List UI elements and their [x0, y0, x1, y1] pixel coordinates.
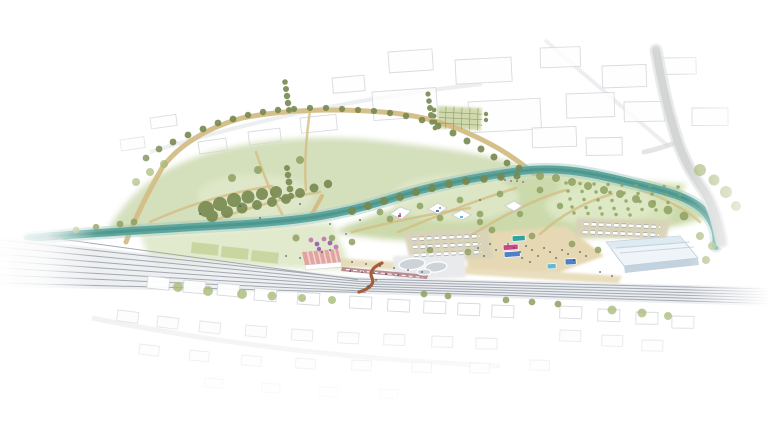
community-gardens-field	[437, 106, 482, 130]
kiosk-pink	[503, 244, 518, 251]
kiosk-teal	[512, 235, 525, 241]
masterplan-rendering	[0, 0, 768, 439]
pavilion-accent	[460, 216, 463, 218]
skate-bowl	[417, 269, 431, 275]
masterplan-canvas	[0, 0, 768, 439]
pavilion-accent	[398, 215, 401, 217]
kiosk-blue	[504, 251, 520, 258]
kiosk-cyan	[547, 264, 556, 269]
pavilion-accent	[436, 210, 439, 212]
